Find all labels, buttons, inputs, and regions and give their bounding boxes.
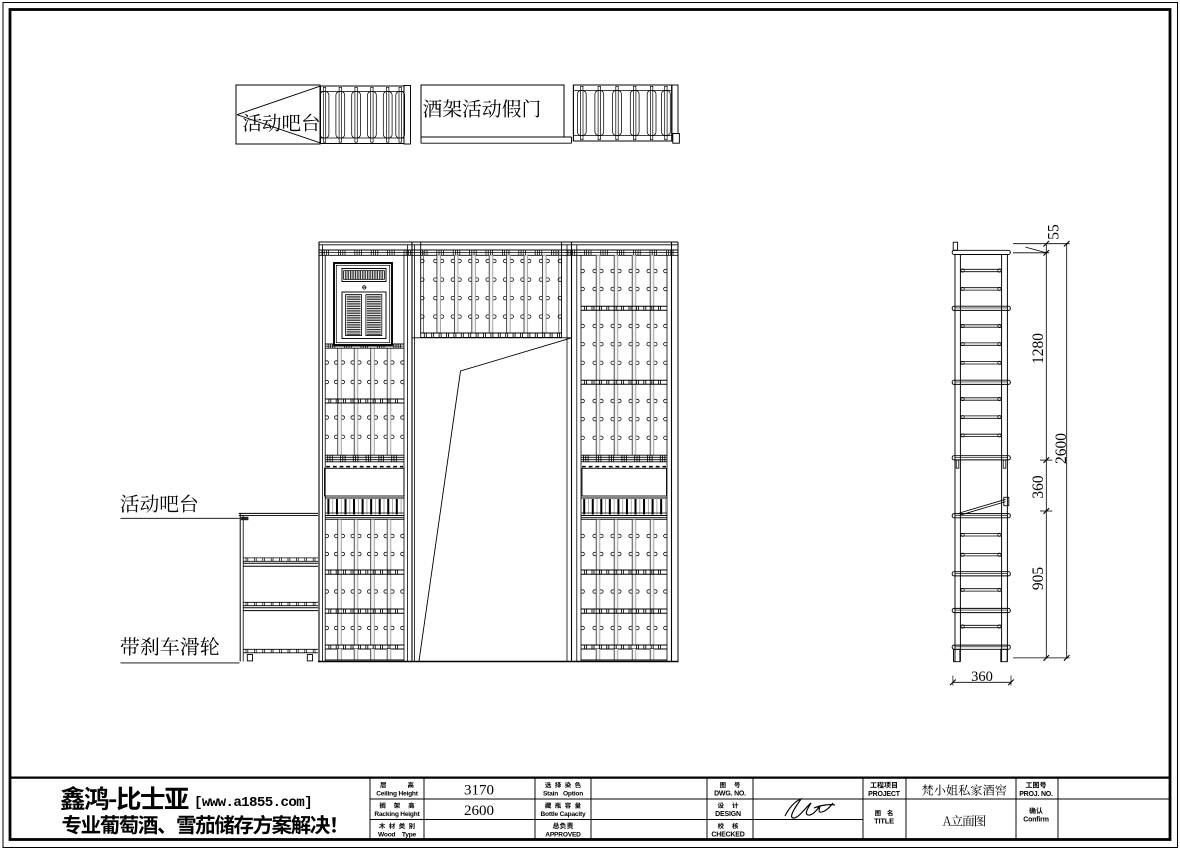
svg-text:PROJECT: PROJECT bbox=[868, 791, 901, 798]
svg-text:Wood Type: Wood Type bbox=[378, 832, 417, 839]
svg-text:Confirm: Confirm bbox=[1023, 817, 1048, 824]
svg-text:Racking Height: Racking Height bbox=[374, 811, 420, 818]
svg-text:55: 55 bbox=[1046, 224, 1063, 240]
svg-text:Ceiling Height: Ceiling Height bbox=[376, 791, 419, 798]
svg-text:APPROVED: APPROVED bbox=[545, 832, 581, 839]
svg-text:360: 360 bbox=[971, 669, 993, 685]
svg-text:1280: 1280 bbox=[1030, 333, 1047, 364]
svg-text:PROJ. NO.: PROJ. NO. bbox=[1019, 791, 1053, 798]
svg-text:DWG. NO.: DWG. NO. bbox=[714, 791, 746, 798]
svg-text:Bottle Capacity: Bottle Capacity bbox=[541, 811, 587, 818]
svg-text:TITLE: TITLE bbox=[874, 817, 894, 826]
svg-text:DESIGN: DESIGN bbox=[715, 811, 741, 818]
svg-text:2600: 2600 bbox=[464, 803, 494, 819]
svg-text:2600: 2600 bbox=[1053, 433, 1070, 464]
svg-text:[www.a1855.com]: [www.a1855.com] bbox=[194, 795, 312, 811]
svg-text:CHECKED: CHECKED bbox=[711, 832, 744, 839]
svg-text:Stain Option: Stain Option bbox=[543, 791, 583, 798]
svg-text:3170: 3170 bbox=[464, 783, 494, 799]
svg-text:360: 360 bbox=[1030, 475, 1047, 499]
svg-text:905: 905 bbox=[1030, 567, 1047, 591]
